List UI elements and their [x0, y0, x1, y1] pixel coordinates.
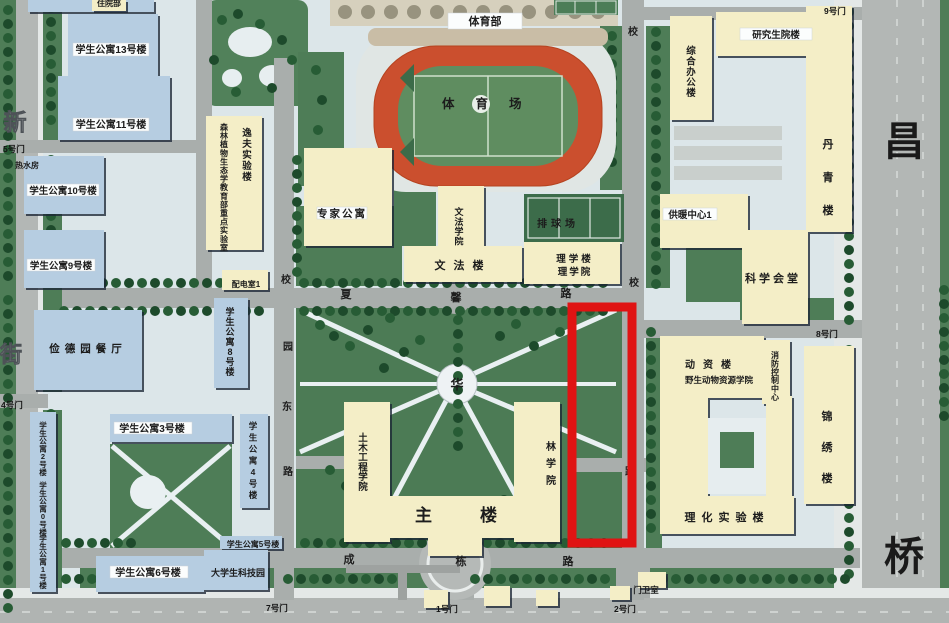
- gate-9: 9号门: [824, 6, 846, 16]
- label-peidian: 配电室1: [232, 279, 261, 289]
- label-dorm3: 学生公寓3号楼: [119, 422, 185, 435]
- label-dorm2: 学生公寓2号楼: [39, 420, 47, 477]
- road-char-south2: 栋: [456, 554, 467, 568]
- street-char-qiao: 桥: [884, 535, 924, 579]
- volleyball-courts: [524, 194, 624, 242]
- road-char-inner-e3: 东: [282, 400, 292, 413]
- gate-7: 7号门: [266, 603, 288, 613]
- campus-map: 住院部 学生公寓13号楼 学生公寓11号楼 学生公寓10号楼 学生公寓9号楼 俭…: [0, 0, 949, 623]
- label-dorm4: 学生公寓4号楼: [249, 421, 258, 500]
- label-yifu: 逸夫实验楼: [241, 127, 252, 183]
- label-tumu: 土木工程学院: [357, 432, 368, 493]
- label-stadium: 体育场: [442, 96, 543, 111]
- label-forest-lab: 森林植物生态学教育部重点实验室: [219, 122, 229, 252]
- road-char-ew2: 馨: [450, 290, 463, 304]
- label-grad: 研究生院楼: [752, 29, 800, 41]
- street-char-jie: 街: [0, 342, 22, 367]
- label-dorm11: 学生公寓11号楼: [76, 118, 147, 131]
- road-char-south1: 成: [344, 552, 355, 566]
- label-tiyubu: 体育部: [469, 14, 502, 28]
- label-dorm8: 学生公寓8号楼: [225, 306, 234, 377]
- label-zhulou: 主楼: [415, 505, 545, 525]
- label-lihua: 理化实验楼: [685, 510, 770, 524]
- road-char-ew1: 夏: [341, 288, 353, 301]
- label-dorm13: 学生公寓13号楼: [75, 43, 146, 56]
- label-danqing: 丹青楼: [823, 138, 834, 217]
- label-lixueyuan: 理学院: [558, 266, 593, 278]
- label-hua: 华: [450, 377, 463, 392]
- label-dongzi: 动资楼: [685, 358, 739, 371]
- label-zonghe: 综合办公楼: [686, 45, 696, 99]
- gate-8: 8号门: [816, 329, 838, 339]
- label-volleyball: 排球场: [537, 217, 579, 230]
- label-wenfa-lou: 文法楼: [435, 258, 492, 272]
- label-lixuelou: 理学楼: [556, 253, 594, 265]
- road-char-inner-e1: 校: [281, 273, 292, 286]
- label-dorm10: 学生公寓10号楼: [29, 185, 97, 197]
- label-gongnuan: 供暖中心1: [667, 209, 712, 221]
- label-dorm6: 学生公寓6号楼: [115, 566, 181, 579]
- label-dorm1: 学生公寓1号楼: [39, 533, 47, 590]
- label-linxueyuan: 林学院: [546, 440, 557, 487]
- label-wenfa-college: 文法学院: [453, 206, 464, 246]
- road-char-east1: 校: [629, 276, 640, 289]
- street-char-chang: 昌: [884, 120, 924, 164]
- tennis-courts: [554, 0, 618, 15]
- street-char-xin: 新: [4, 109, 27, 135]
- label-guard: 门卫室: [633, 585, 659, 595]
- road-char-south3: 路: [563, 554, 575, 568]
- label-dorm5: 学生公寓5号楼: [227, 539, 279, 549]
- campus-map-svg: 住院部 学生公寓13号楼 学生公寓11号楼 学生公寓10号楼 学生公寓9号楼 俭…: [0, 0, 949, 623]
- label-hospital: 住院部: [97, 0, 121, 8]
- label-dorm9: 学生公寓9号楼: [30, 260, 93, 272]
- gate-5: 5号门: [3, 144, 25, 154]
- road-char-ew3: 路: [561, 286, 573, 300]
- label-kexue: 科学会堂: [745, 271, 801, 285]
- label-jinxiu: 锦绣楼: [821, 409, 834, 485]
- label-expert: 专家公寓: [317, 207, 367, 220]
- label-hotwater: 热水房: [15, 160, 39, 170]
- gate-2: 2号门: [614, 604, 636, 614]
- label-yesheng: 野生动物资源学院: [685, 375, 754, 385]
- road-char-east-top: 校: [628, 25, 639, 38]
- label-dorm0: 学生公寓0号楼: [39, 480, 47, 537]
- gate-4: 4号门: [1, 400, 23, 410]
- label-xiaofang: 消防控制中心: [771, 350, 779, 402]
- label-techpark: 大学生科技园: [211, 567, 265, 578]
- road-char-inner-e4: 路: [283, 465, 294, 478]
- label-canteen: 俭德园餐厅: [49, 342, 127, 355]
- gate-1: 1号门: [436, 604, 458, 614]
- road-char-inner-e2: 园: [283, 341, 293, 353]
